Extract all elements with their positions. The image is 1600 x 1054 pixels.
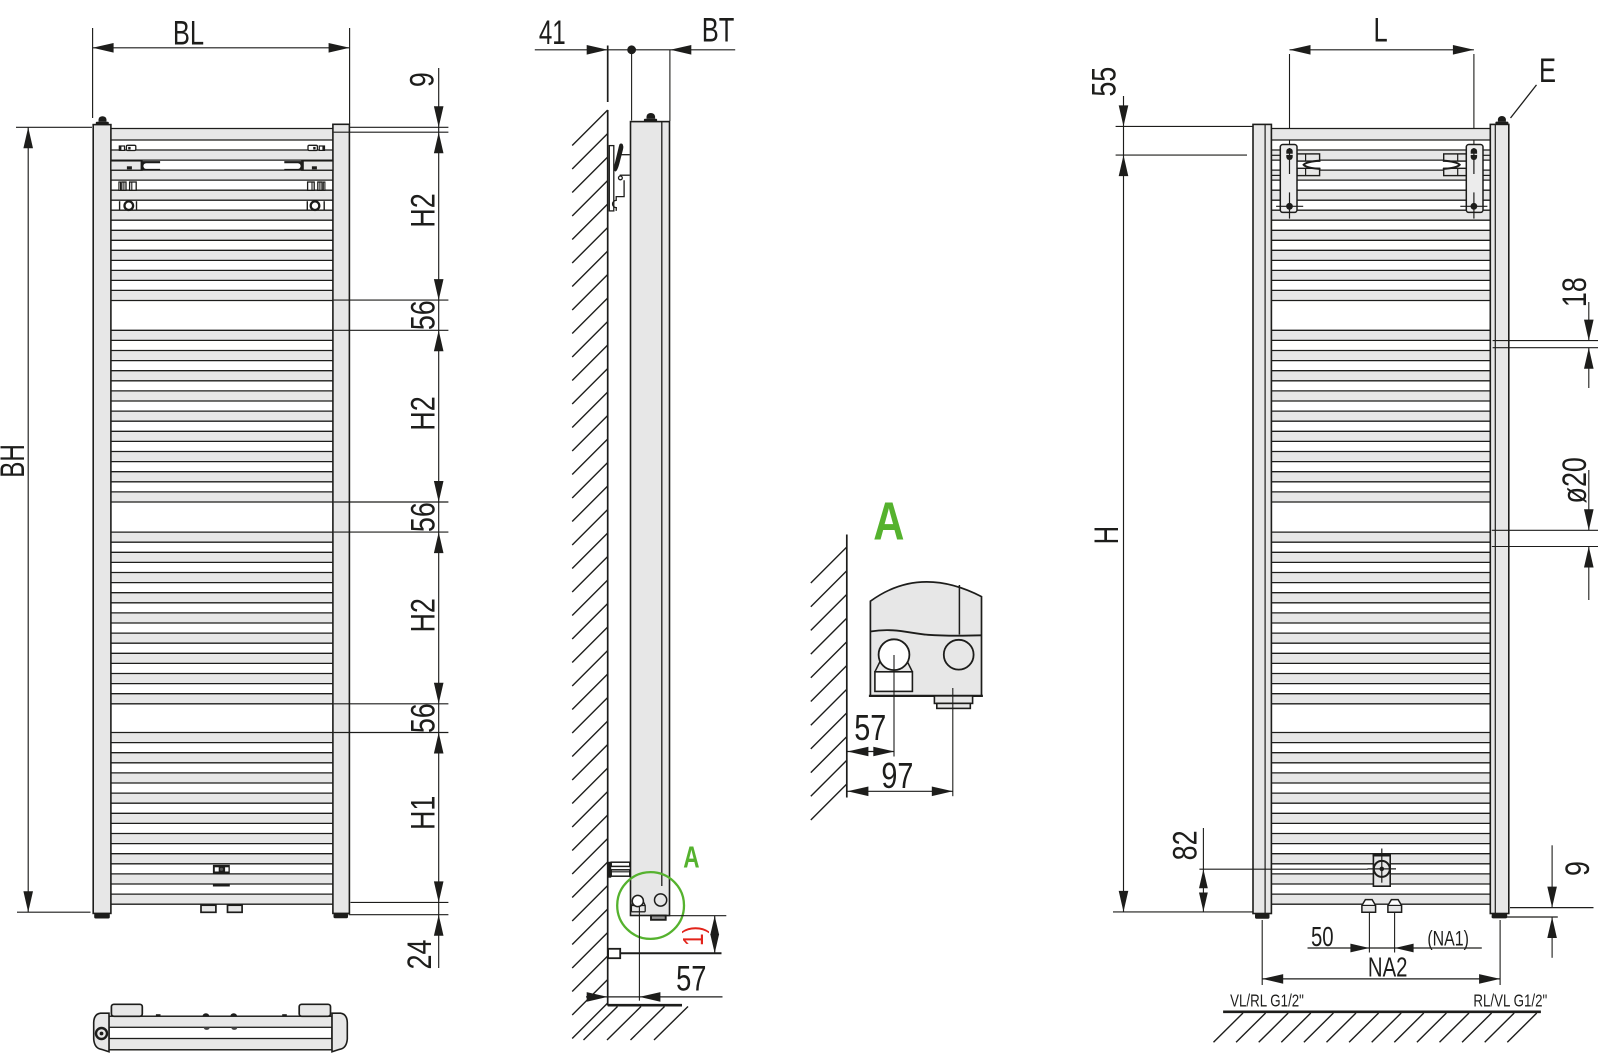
svg-text:9: 9 [1558, 861, 1597, 876]
svg-text:57: 57 [676, 959, 706, 998]
svg-text:(NA1): (NA1) [1427, 927, 1469, 951]
svg-text:H1: H1 [403, 796, 442, 830]
svg-text:L: L [1374, 12, 1388, 50]
svg-text:VL/RL G1/2": VL/RL G1/2" [1230, 992, 1304, 1011]
svg-text:A: A [873, 492, 904, 552]
svg-text:56: 56 [403, 502, 442, 532]
svg-text:97: 97 [881, 755, 913, 796]
svg-text:H2: H2 [403, 598, 442, 632]
svg-text:82: 82 [1165, 830, 1204, 860]
svg-text:H: H [1088, 526, 1126, 544]
svg-text:ø20: ø20 [1555, 457, 1594, 503]
svg-text:1): 1) [676, 926, 709, 946]
svg-text:24: 24 [400, 940, 439, 970]
svg-text:NA2: NA2 [1368, 953, 1408, 984]
svg-text:50: 50 [1311, 922, 1334, 953]
svg-text:18: 18 [1555, 277, 1594, 307]
svg-text:BH: BH [0, 444, 32, 478]
svg-text:H2: H2 [403, 193, 442, 227]
svg-text:9: 9 [402, 72, 441, 87]
svg-text:56: 56 [403, 300, 442, 330]
svg-text:E: E [1539, 52, 1556, 90]
svg-text:RL/VL G1/2": RL/VL G1/2" [1473, 992, 1547, 1011]
svg-text:BL: BL [173, 15, 204, 53]
svg-text:41: 41 [539, 14, 566, 52]
svg-text:57: 57 [854, 707, 886, 748]
svg-text:A: A [683, 840, 699, 874]
svg-text:55: 55 [1084, 67, 1123, 97]
svg-text:56: 56 [403, 703, 442, 733]
svg-text:H2: H2 [403, 396, 442, 430]
svg-text:BT: BT [702, 12, 735, 50]
